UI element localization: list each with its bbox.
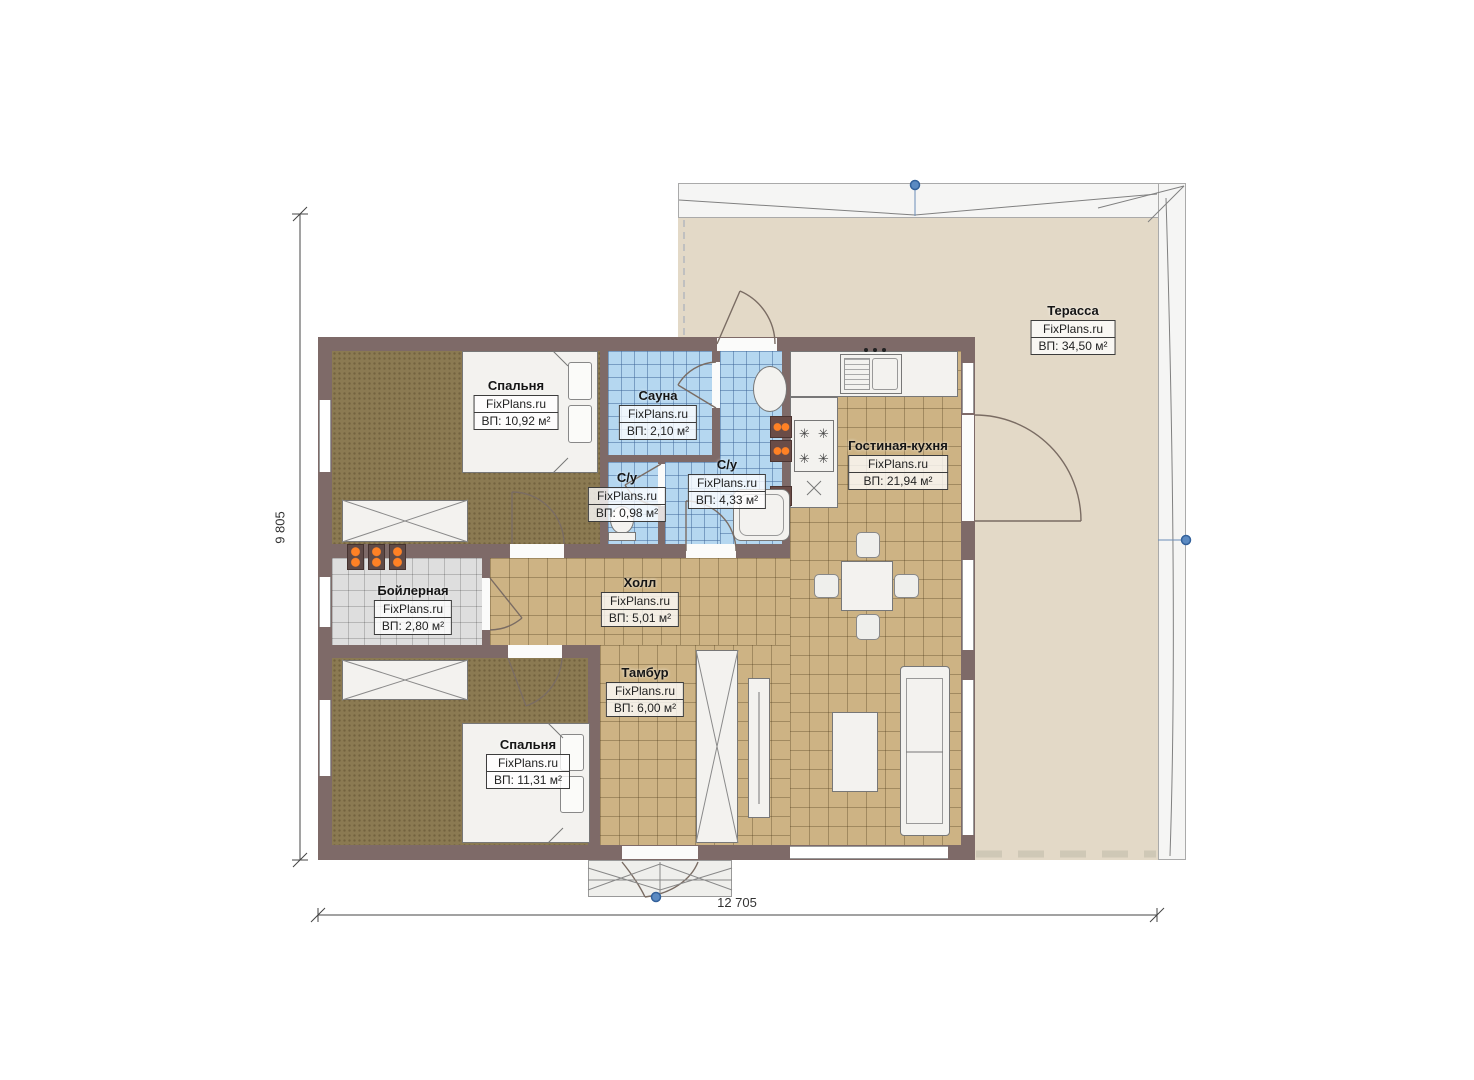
entrance-porch bbox=[588, 860, 732, 897]
brand-box: FixPlans.ru bbox=[688, 474, 766, 492]
window-living-bottom bbox=[790, 846, 948, 859]
area-box: ВП: 2,80 м² bbox=[374, 617, 452, 635]
brand-box: FixPlans.ru bbox=[619, 405, 697, 423]
brand-box: FixPlans.ru bbox=[1031, 320, 1116, 338]
door-opening-sauna bbox=[712, 362, 720, 408]
brand-box: FixPlans.ru bbox=[588, 487, 666, 505]
area-box: ВП: 11,31 м² bbox=[486, 771, 570, 789]
brand-box: FixPlans.ru bbox=[374, 600, 452, 618]
radiator bbox=[770, 440, 792, 462]
room-name: Спальня bbox=[486, 737, 570, 752]
window-living-right-3 bbox=[962, 680, 974, 835]
window-bedroom-2-left bbox=[319, 700, 331, 776]
brand-box: FixPlans.ru bbox=[601, 592, 679, 610]
window-boiler-left bbox=[319, 577, 331, 627]
area-box: ВП: 21,94 м² bbox=[848, 472, 948, 490]
door-opening-wc-terrace bbox=[717, 338, 777, 351]
area-box: ВП: 6,00 м² bbox=[606, 699, 684, 717]
area-box: ВП: 10,92 м² bbox=[474, 412, 559, 430]
dining-table bbox=[841, 561, 893, 611]
dim-height-label: 9 805 bbox=[273, 488, 288, 568]
door-opening-bedroom-2 bbox=[508, 645, 562, 658]
label-hall: Холл FixPlans.ru ВП: 5,01 м² bbox=[601, 575, 679, 627]
chair bbox=[856, 532, 880, 558]
kitchen-sink-bowl bbox=[872, 358, 898, 390]
door-opening-wc-big bbox=[686, 544, 736, 558]
radiator bbox=[770, 416, 792, 438]
wardrobe-tambour bbox=[696, 650, 738, 843]
terrace-roof-band-top bbox=[678, 183, 1186, 218]
boiler-unit bbox=[389, 544, 406, 570]
label-living-kitchen: Гостиная-кухня FixPlans.ru ВП: 21,94 м² bbox=[848, 438, 948, 490]
window-bedroom-1-left bbox=[319, 400, 331, 472]
label-sauna: Сауна FixPlans.ru ВП: 2,10 м² bbox=[619, 388, 697, 440]
label-boiler: Бойлерная FixPlans.ru ВП: 2,80 м² bbox=[374, 583, 452, 635]
label-wc-small: С/у FixPlans.ru ВП: 0,98 м² bbox=[588, 470, 666, 522]
door-opening-entrance bbox=[622, 846, 698, 859]
floor-plan: ✳✳✳✳ Спальня FixPlans.ru ВП: 10,92 м² Са… bbox=[0, 0, 1474, 1080]
brand-box: FixPlans.ru bbox=[848, 455, 948, 473]
kitchen-stove: ✳✳✳✳ bbox=[794, 420, 834, 472]
room-name: С/у bbox=[688, 457, 766, 472]
terrace-roof-band-right bbox=[1158, 183, 1186, 860]
window-living-right-2 bbox=[962, 560, 974, 650]
area-box: ВП: 34,50 м² bbox=[1031, 337, 1116, 355]
sofa-seat bbox=[906, 678, 943, 824]
mirror-cabinet bbox=[748, 678, 770, 818]
toilet-tank bbox=[608, 532, 636, 541]
chair bbox=[814, 574, 839, 598]
wardrobe-bedroom-1 bbox=[342, 500, 468, 542]
label-bedroom-2: Спальня FixPlans.ru ВП: 11,31 м² bbox=[486, 737, 570, 789]
chair bbox=[894, 574, 919, 598]
washbasin-wc-big bbox=[753, 366, 787, 412]
boiler-unit bbox=[347, 544, 364, 570]
label-bedroom-1: Спальня FixPlans.ru ВП: 10,92 м² bbox=[474, 378, 559, 430]
area-box: ВП: 5,01 м² bbox=[601, 609, 679, 627]
room-name: Спальня bbox=[474, 378, 559, 393]
door-opening-boiler bbox=[482, 578, 490, 630]
brand-box: FixPlans.ru bbox=[474, 395, 559, 413]
area-box: ВП: 0,98 м² bbox=[588, 504, 666, 522]
label-terrace: Терасса FixPlans.ru ВП: 34,50 м² bbox=[1031, 303, 1116, 355]
window-living-right-1 bbox=[962, 363, 974, 413]
room-name: С/у bbox=[588, 470, 666, 485]
room-name: Терасса bbox=[1031, 303, 1116, 318]
pillow bbox=[568, 362, 592, 400]
door-opening-living-terrace bbox=[962, 415, 974, 521]
room-name: Гостиная-кухня bbox=[848, 438, 948, 453]
room-name: Холл bbox=[601, 575, 679, 590]
brand-box: FixPlans.ru bbox=[486, 754, 570, 772]
pillow bbox=[568, 405, 592, 443]
dim-width-label: 12 705 bbox=[692, 895, 782, 910]
coffee-table bbox=[832, 712, 878, 792]
room-name: Сауна bbox=[619, 388, 697, 403]
area-box: ВП: 4,33 м² bbox=[688, 491, 766, 509]
door-opening-bedroom-1 bbox=[510, 544, 564, 558]
room-name: Бойлерная bbox=[374, 583, 452, 598]
chair bbox=[856, 614, 880, 640]
kitchen-sink-drainboard bbox=[844, 358, 870, 390]
area-box: ВП: 2,10 м² bbox=[619, 422, 697, 440]
room-name: Тамбур bbox=[606, 665, 684, 680]
boiler-unit bbox=[368, 544, 385, 570]
brand-box: FixPlans.ru bbox=[606, 682, 684, 700]
wardrobe-bedroom-2 bbox=[342, 660, 468, 700]
label-tambour: Тамбур FixPlans.ru ВП: 6,00 м² bbox=[606, 665, 684, 717]
label-wc-big: С/у FixPlans.ru ВП: 4,33 м² bbox=[688, 457, 766, 509]
